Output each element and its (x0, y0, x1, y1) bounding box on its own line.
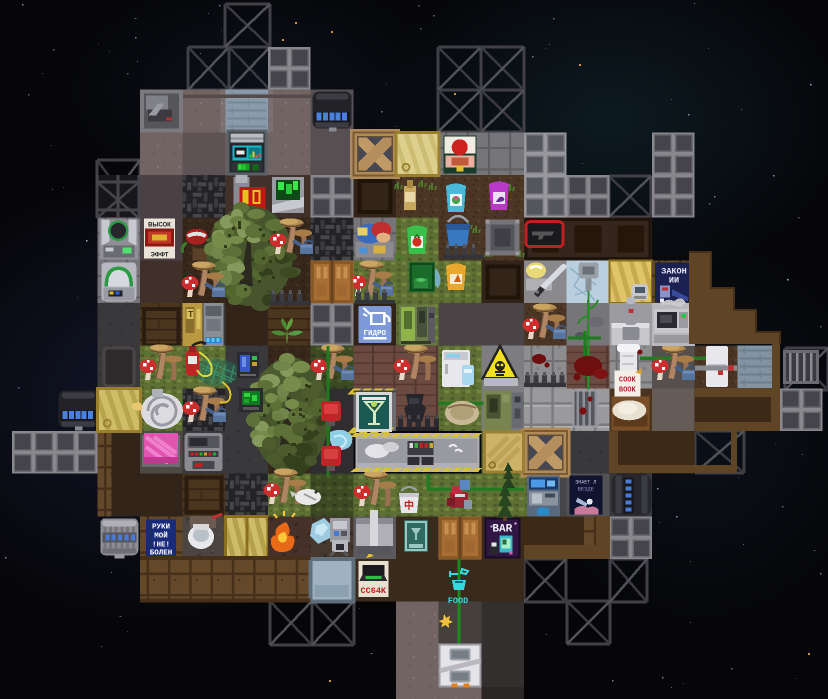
svg-text:!НЕ!: !НЕ! (152, 541, 170, 549)
svg-text:BOOK: BOOK (619, 386, 637, 394)
svg-text:BAR: BAR (492, 523, 512, 535)
svg-text:МОЙ: МОЙ (154, 531, 168, 540)
svg-text:FOOD: FOOD (448, 596, 468, 606)
svg-text:ВЫСОК: ВЫСОК (148, 223, 171, 229)
svg-text:ВЕЗДЕ: ВЕЗДЕ (577, 486, 594, 493)
svg-text:ЭФФТ: ЭФФТ (151, 253, 169, 259)
svg-text:CC64K: CC64K (361, 586, 387, 596)
svg-text:中: 中 (404, 499, 414, 513)
svg-text:ИИ: ИИ (669, 275, 679, 285)
svg-text:T: T (188, 310, 193, 319)
svg-text:ГИДРО: ГИДРО (364, 330, 387, 338)
svg-text:РУКИ: РУКИ (152, 523, 171, 531)
svg-text:COOK: COOK (619, 376, 637, 384)
